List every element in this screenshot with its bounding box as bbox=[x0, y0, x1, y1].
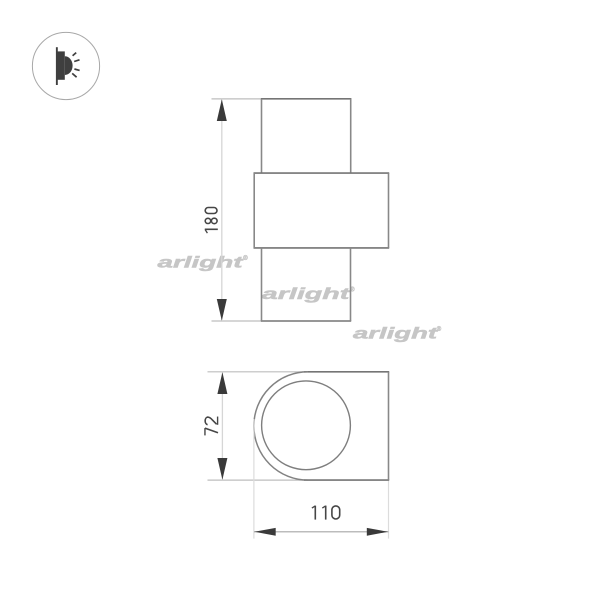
svg-text:arlight: arlight bbox=[262, 285, 351, 303]
svg-text:®: ® bbox=[437, 326, 442, 333]
svg-text:®: ® bbox=[243, 255, 248, 262]
svg-text:arlight: arlight bbox=[353, 324, 439, 342]
svg-text:arlight: arlight bbox=[158, 253, 245, 271]
